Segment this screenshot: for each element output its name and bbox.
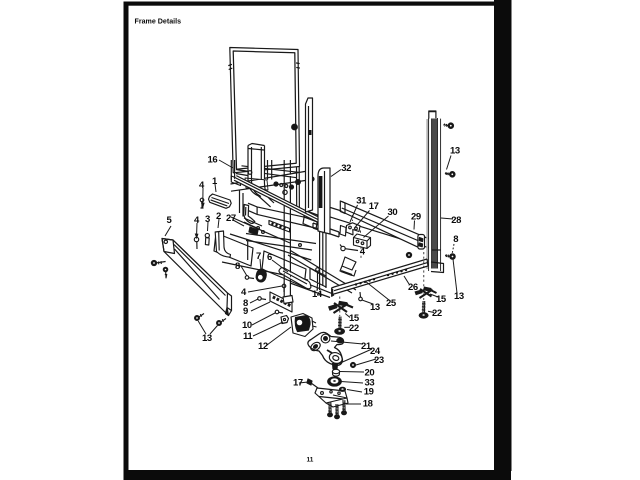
svg-text:29: 29 <box>411 211 421 222</box>
svg-text:28: 28 <box>451 215 461 226</box>
svg-text:17: 17 <box>369 201 379 212</box>
svg-text:18: 18 <box>363 399 373 410</box>
svg-text:22: 22 <box>432 308 442 319</box>
svg-text:14: 14 <box>312 289 323 300</box>
svg-text:19: 19 <box>364 387 374 398</box>
svg-text:11: 11 <box>307 457 314 464</box>
svg-text:27: 27 <box>226 213 236 224</box>
svg-text:15: 15 <box>436 294 447 305</box>
svg-text:13: 13 <box>370 302 380 313</box>
svg-text:9: 9 <box>243 306 248 317</box>
svg-text:6: 6 <box>267 252 272 263</box>
svg-text:8: 8 <box>235 261 240 272</box>
svg-text:8: 8 <box>453 234 458 245</box>
svg-text:13: 13 <box>454 291 464 302</box>
svg-text:16: 16 <box>208 155 218 166</box>
svg-text:3: 3 <box>205 214 210 225</box>
svg-text:25: 25 <box>386 298 397 309</box>
svg-text:10: 10 <box>242 320 252 331</box>
svg-text:32: 32 <box>341 163 351 174</box>
svg-text:2: 2 <box>216 211 221 222</box>
svg-text:12: 12 <box>258 341 268 352</box>
svg-text:13: 13 <box>202 333 212 344</box>
svg-text:13: 13 <box>450 146 460 157</box>
svg-text:22: 22 <box>349 323 359 334</box>
svg-text:31: 31 <box>356 196 367 207</box>
svg-text:26: 26 <box>408 282 418 293</box>
svg-text:23: 23 <box>374 355 384 366</box>
svg-text:17: 17 <box>293 377 303 388</box>
svg-text:Frame Details: Frame Details <box>135 18 182 26</box>
svg-text:30: 30 <box>388 207 398 218</box>
svg-text:11: 11 <box>243 331 253 342</box>
svg-text:7: 7 <box>256 251 261 262</box>
